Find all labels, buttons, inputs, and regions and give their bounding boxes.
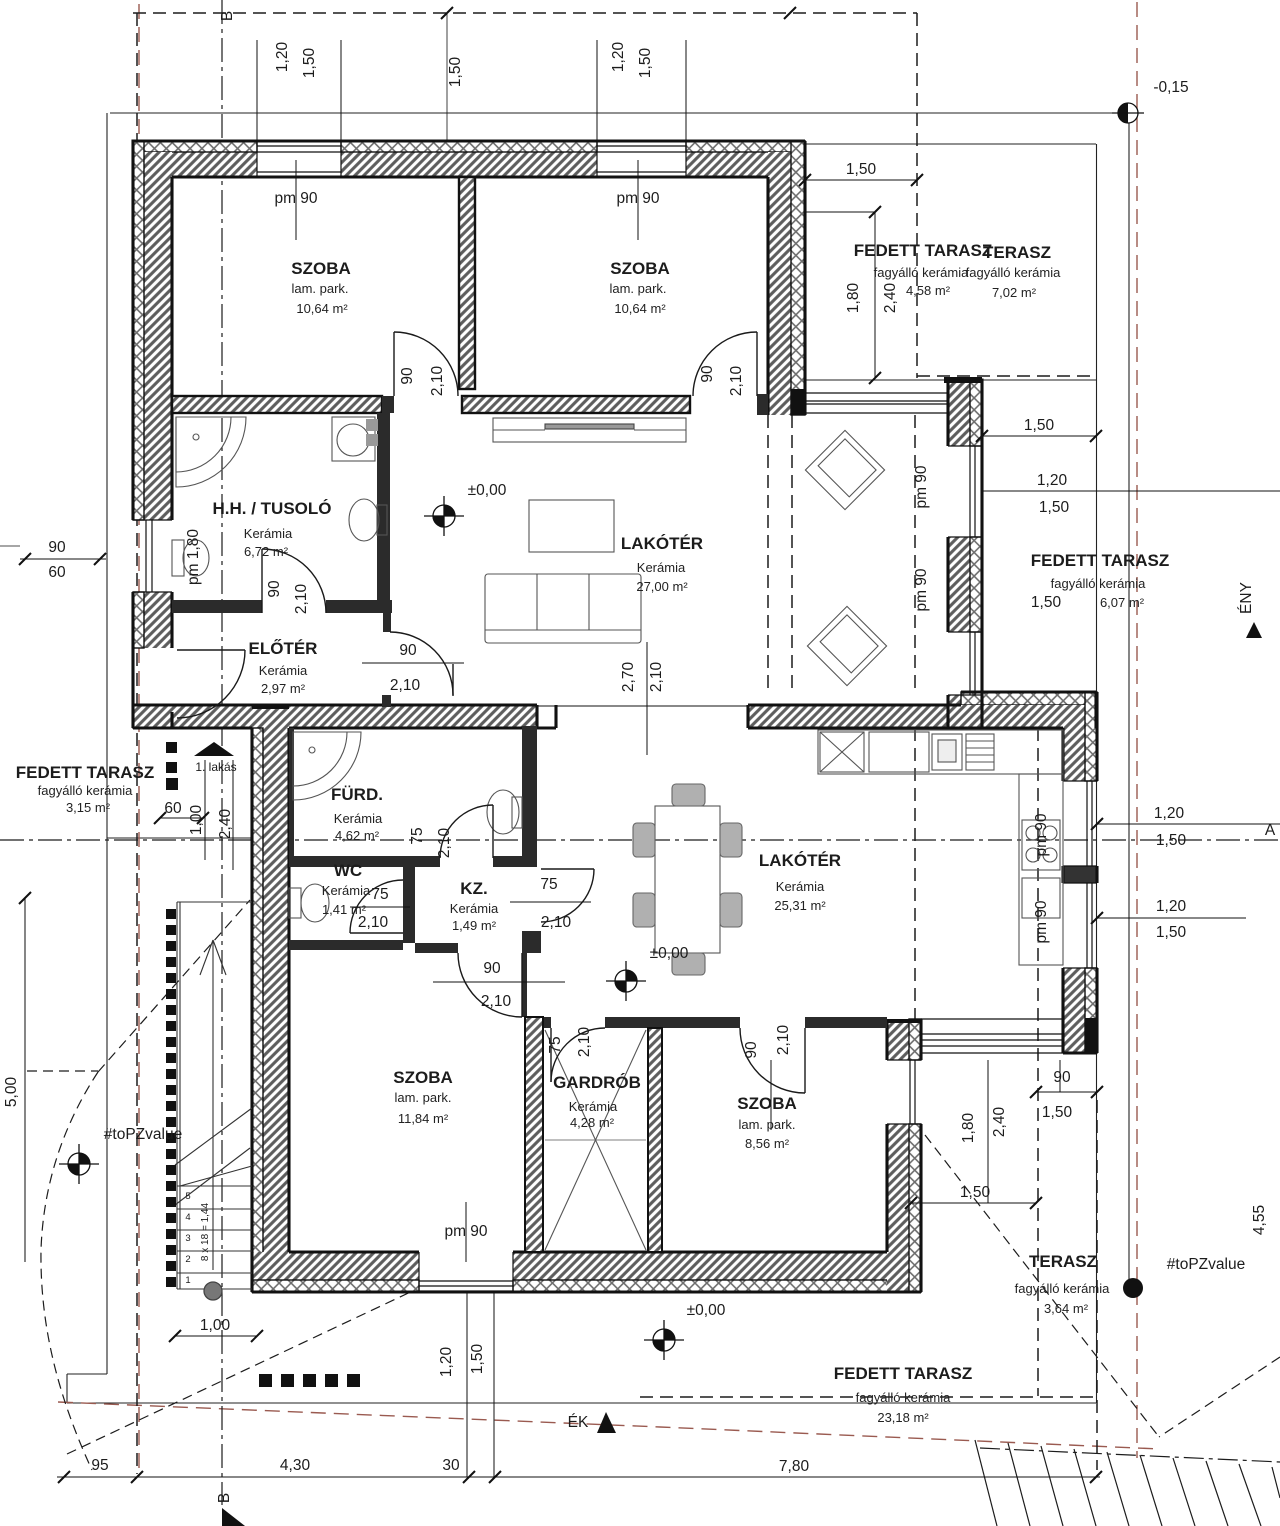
svg-text:90: 90: [483, 960, 501, 977]
svg-text:Kerámia: Kerámia: [244, 526, 293, 541]
svg-text:1,50: 1,50: [469, 1344, 486, 1375]
svg-text:2,10: 2,10: [775, 1025, 792, 1056]
svg-text:lam. park.: lam. park.: [291, 281, 348, 296]
svg-text:1,20: 1,20: [1037, 472, 1068, 489]
svg-text:75: 75: [409, 827, 426, 844]
svg-text:B: B: [216, 1493, 233, 1503]
svg-text:3,64 m²: 3,64 m²: [1044, 1301, 1089, 1316]
svg-text:90: 90: [699, 365, 716, 383]
svg-text:Kerámia: Kerámia: [776, 879, 825, 894]
svg-text:1,50: 1,50: [1042, 1104, 1073, 1121]
svg-text:1,50: 1,50: [1039, 499, 1070, 516]
svg-text:4,58 m²: 4,58 m²: [906, 283, 951, 298]
svg-text:1,50: 1,50: [447, 57, 464, 88]
svg-text:90: 90: [48, 539, 66, 556]
svg-text:fagyálló kerámia: fagyálló kerámia: [856, 1390, 951, 1405]
svg-text:1,50: 1,50: [846, 161, 877, 178]
svg-text:2,10: 2,10: [390, 677, 421, 694]
svg-text:75: 75: [540, 876, 557, 893]
svg-text:±0,00: ±0,00: [687, 1302, 726, 1319]
svg-text:1,50: 1,50: [1031, 594, 1062, 611]
svg-text:1,20: 1,20: [274, 42, 291, 73]
svg-text:#toPZvalue: #toPZvalue: [1167, 1256, 1245, 1273]
svg-text:B: B: [219, 11, 236, 21]
svg-text:Kerámia: Kerámia: [334, 811, 383, 826]
svg-text:ELŐTÉR: ELŐTÉR: [249, 639, 318, 658]
svg-text:1,20: 1,20: [610, 42, 627, 73]
svg-text:1,50: 1,50: [1156, 832, 1187, 849]
svg-text:pm 90: pm 90: [1033, 813, 1050, 856]
svg-text:90: 90: [1053, 1069, 1071, 1086]
svg-text:Kerámia: Kerámia: [450, 901, 499, 916]
svg-text:6,07 m²: 6,07 m²: [1100, 595, 1145, 610]
svg-text:LAKÓTÉR: LAKÓTÉR: [621, 534, 703, 553]
svg-text:Kerámia: Kerámia: [569, 1099, 618, 1114]
svg-text:1,50: 1,50: [1024, 417, 1055, 434]
svg-text:8,56 m²: 8,56 m²: [745, 1136, 790, 1151]
svg-text:2,10: 2,10: [293, 584, 310, 615]
svg-text:FEDETT TARASZ: FEDETT TARASZ: [834, 1364, 973, 1383]
svg-text:1,00: 1,00: [200, 1317, 231, 1334]
svg-text:4: 4: [185, 1212, 190, 1223]
svg-text:1,80: 1,80: [960, 1113, 977, 1144]
svg-text:#toPZvalue: #toPZvalue: [104, 1126, 182, 1143]
svg-text:pm 90: pm 90: [913, 568, 930, 611]
svg-text:2,10: 2,10: [358, 914, 389, 931]
svg-text:1,20: 1,20: [1156, 898, 1187, 915]
svg-text:fagyálló kerámia: fagyálló kerámia: [1051, 576, 1146, 591]
svg-text:FEDETT TARASZ: FEDETT TARASZ: [1031, 551, 1170, 570]
svg-text:pm 90: pm 90: [616, 190, 659, 207]
svg-text:10,64 m²: 10,64 m²: [296, 301, 348, 316]
svg-text:H.H. / TUSOLÓ: H.H. / TUSOLÓ: [213, 499, 332, 518]
svg-text:SZOBA: SZOBA: [393, 1068, 453, 1087]
svg-text:4,62 m²: 4,62 m²: [335, 828, 380, 843]
svg-text:27,00 m²: 27,00 m²: [636, 579, 688, 594]
svg-text:95: 95: [91, 1457, 108, 1474]
svg-text:90: 90: [399, 367, 416, 385]
svg-text:WC: WC: [334, 861, 362, 880]
svg-text:1,50: 1,50: [1156, 924, 1187, 941]
svg-text:1,20: 1,20: [438, 1347, 455, 1378]
svg-text:75: 75: [371, 886, 388, 903]
svg-text:2,10: 2,10: [576, 1027, 593, 1058]
svg-text:2,40: 2,40: [217, 809, 234, 840]
svg-text:TERASZ: TERASZ: [1029, 1252, 1097, 1271]
svg-text:1,49 m²: 1,49 m²: [452, 918, 497, 933]
svg-text:pm 90: pm 90: [1033, 900, 1050, 943]
svg-text:2,10: 2,10: [728, 366, 745, 397]
svg-text:4,28 m²: 4,28 m²: [570, 1115, 615, 1130]
svg-text:pm 90: pm 90: [444, 1223, 487, 1240]
svg-text:2,10: 2,10: [481, 993, 512, 1010]
svg-text:GARDRÓB: GARDRÓB: [553, 1073, 641, 1092]
svg-text:lam. park.: lam. park.: [394, 1090, 451, 1105]
svg-text:7,80: 7,80: [779, 1458, 810, 1475]
svg-text:pm 90: pm 90: [274, 190, 317, 207]
svg-text:10,64 m²: 10,64 m²: [614, 301, 666, 316]
svg-text:5,00: 5,00: [3, 1077, 20, 1108]
svg-text:2,10: 2,10: [541, 914, 572, 931]
svg-text:2,97 m²: 2,97 m²: [261, 681, 306, 696]
svg-text:lam. park.: lam. park.: [738, 1117, 795, 1132]
svg-text:TERASZ: TERASZ: [983, 243, 1051, 262]
svg-text:SZOBA: SZOBA: [291, 259, 351, 278]
svg-text:KZ.: KZ.: [460, 879, 487, 898]
svg-text:1,50: 1,50: [960, 1184, 991, 1201]
svg-text:1. lakás: 1. lakás: [195, 760, 236, 774]
svg-text:60: 60: [164, 800, 182, 817]
svg-text:Kerámia: Kerámia: [322, 883, 371, 898]
svg-text:±0,00: ±0,00: [650, 945, 689, 962]
svg-text:1,80: 1,80: [845, 283, 862, 314]
svg-text:ÉK: ÉK: [568, 1414, 589, 1431]
svg-text:3,15 m²: 3,15 m²: [66, 800, 111, 815]
svg-text:1,20: 1,20: [1154, 805, 1185, 822]
svg-text:2,10: 2,10: [429, 366, 446, 397]
svg-text:2,10: 2,10: [436, 828, 453, 859]
svg-text:25,31 m²: 25,31 m²: [774, 898, 826, 913]
svg-text:1,50: 1,50: [637, 48, 654, 79]
svg-text:11,84 m²: 11,84 m²: [398, 1111, 449, 1126]
svg-text:FEDETT TARASZ: FEDETT TARASZ: [854, 241, 993, 260]
svg-text:90: 90: [743, 1041, 760, 1059]
svg-text:pm 90: pm 90: [913, 465, 930, 508]
svg-text:90: 90: [399, 642, 417, 659]
svg-text:pm 1,80: pm 1,80: [185, 529, 202, 585]
svg-text:2,10: 2,10: [648, 662, 665, 693]
svg-text:4,55: 4,55: [1251, 1205, 1268, 1235]
svg-text:23,18 m²: 23,18 m²: [877, 1410, 929, 1425]
svg-text:30: 30: [442, 1457, 460, 1474]
svg-text:60: 60: [48, 564, 66, 581]
svg-text:75: 75: [547, 1036, 564, 1053]
svg-text:7,02 m²: 7,02 m²: [992, 285, 1037, 300]
svg-text:FEDETT TARASZ: FEDETT TARASZ: [16, 763, 155, 782]
svg-text:SZOBA: SZOBA: [610, 259, 670, 278]
svg-text:2,70: 2,70: [620, 662, 637, 693]
svg-text:ÉNY: ÉNY: [1238, 582, 1255, 614]
svg-text:1,50: 1,50: [301, 48, 318, 79]
svg-text:5: 5: [185, 1191, 190, 1202]
svg-text:6,72 m²: 6,72 m²: [244, 544, 289, 559]
svg-text:fagyálló kerámia: fagyálló kerámia: [38, 783, 133, 798]
svg-text:fagyálló kerámia: fagyálló kerámia: [1015, 1281, 1110, 1296]
svg-text:fagyálló kerámia: fagyálló kerámia: [874, 265, 969, 280]
svg-text:90: 90: [266, 580, 283, 598]
svg-text:1,00: 1,00: [188, 805, 205, 836]
svg-text:3: 3: [185, 1233, 190, 1244]
svg-text:2,40: 2,40: [991, 1107, 1008, 1138]
svg-text:-0,15: -0,15: [1153, 79, 1188, 96]
svg-text:LAKÓTÉR: LAKÓTÉR: [759, 851, 841, 870]
svg-text:8 x 18 = 1,44: 8 x 18 = 1,44: [200, 1203, 211, 1262]
svg-text:4,30: 4,30: [280, 1457, 311, 1474]
svg-text:1: 1: [185, 1275, 190, 1286]
svg-text:A: A: [1265, 822, 1276, 839]
svg-text:SZOBA: SZOBA: [737, 1094, 797, 1113]
svg-text:2,40: 2,40: [882, 283, 899, 314]
svg-text:fagyálló kerámia: fagyálló kerámia: [966, 265, 1061, 280]
svg-text:Kerámia: Kerámia: [259, 663, 308, 678]
svg-text:2: 2: [185, 1254, 190, 1265]
svg-text:±0,00: ±0,00: [468, 482, 507, 499]
svg-text:Kerámia: Kerámia: [637, 560, 686, 575]
svg-text:FÜRD.: FÜRD.: [331, 785, 383, 804]
svg-text:lam. park.: lam. park.: [609, 281, 666, 296]
